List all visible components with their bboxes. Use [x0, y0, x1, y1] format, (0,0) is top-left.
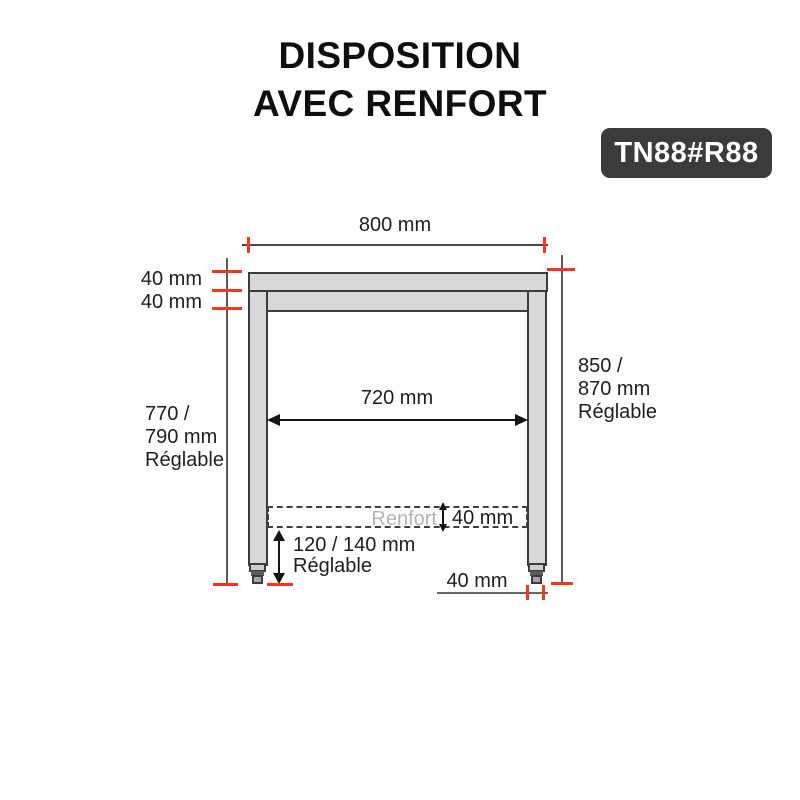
- top-width-dimension-line: [242, 244, 548, 246]
- inner-width-arrow: [278, 419, 517, 421]
- left-height-label: 770 / 790 mm Réglable: [145, 403, 224, 472]
- dimension-tick: [247, 237, 250, 253]
- right-foot-lower: [531, 575, 542, 584]
- left-height-line-1: 770 /: [145, 403, 224, 426]
- foot-height-arrow: [278, 536, 280, 578]
- renfort-label: Renfort: [330, 508, 437, 531]
- product-code-label: TN88#R88: [614, 137, 758, 170]
- leg-width-label: 40 mm: [437, 570, 517, 593]
- left-height-line-3: Réglable: [145, 449, 224, 472]
- dimension-tick: [212, 270, 242, 273]
- top-width-label: 800 mm: [242, 214, 548, 237]
- inner-width-label: 720 mm: [266, 387, 528, 410]
- top-thickness-label: 40 mm: [120, 268, 202, 291]
- arrow-head-down-icon: [439, 524, 447, 532]
- renfort-thickness-label: 40 mm: [452, 507, 513, 530]
- leg-width-underline: [437, 592, 548, 594]
- right-height-label: 850 / 870 mm Réglable: [578, 355, 657, 424]
- foot-height-line-2: Réglable: [293, 556, 415, 577]
- right-height-line-3: Réglable: [578, 401, 657, 424]
- apron-rail-rect: [265, 290, 530, 312]
- diagram-canvas: DISPOSITION AVEC RENFORT TN88#R88 800 mm…: [0, 0, 800, 800]
- dimension-tick: [543, 237, 546, 253]
- right-height-line-2: 870 mm: [578, 378, 657, 401]
- dimension-tick: [212, 307, 242, 310]
- product-code-badge: TN88#R88: [601, 128, 772, 178]
- apron-thickness-label: 40 mm: [120, 291, 202, 314]
- foot-height-label: 120 / 140 mm Réglable: [293, 535, 415, 577]
- dimension-tick: [526, 585, 529, 600]
- tabletop-rect: [248, 272, 548, 292]
- page-title-line-1: DISPOSITION: [0, 32, 800, 80]
- right-leg-rect: [527, 290, 547, 566]
- right-height-line-1: 850 /: [578, 355, 657, 378]
- left-height-line-2: 790 mm: [145, 426, 224, 449]
- ground-line-segment: [213, 583, 238, 586]
- arrow-head-up-icon: [273, 530, 285, 541]
- dimension-tick: [547, 268, 575, 271]
- right-extension-line: [561, 255, 563, 585]
- dimension-tick: [212, 289, 242, 292]
- dimension-tick: [551, 582, 573, 585]
- foot-height-line-1: 120 / 140 mm: [293, 535, 415, 556]
- arrow-head-right-icon: [515, 414, 528, 426]
- left-leg-rect: [248, 290, 268, 566]
- dimension-tick: [542, 585, 545, 600]
- left-foot-lower: [252, 575, 263, 584]
- ground-line-segment: [267, 583, 293, 586]
- page-title-line-2: AVEC RENFORT: [0, 80, 800, 128]
- arrow-head-up-icon: [439, 502, 447, 510]
- page-title: DISPOSITION AVEC RENFORT: [0, 32, 800, 128]
- arrow-head-left-icon: [267, 414, 280, 426]
